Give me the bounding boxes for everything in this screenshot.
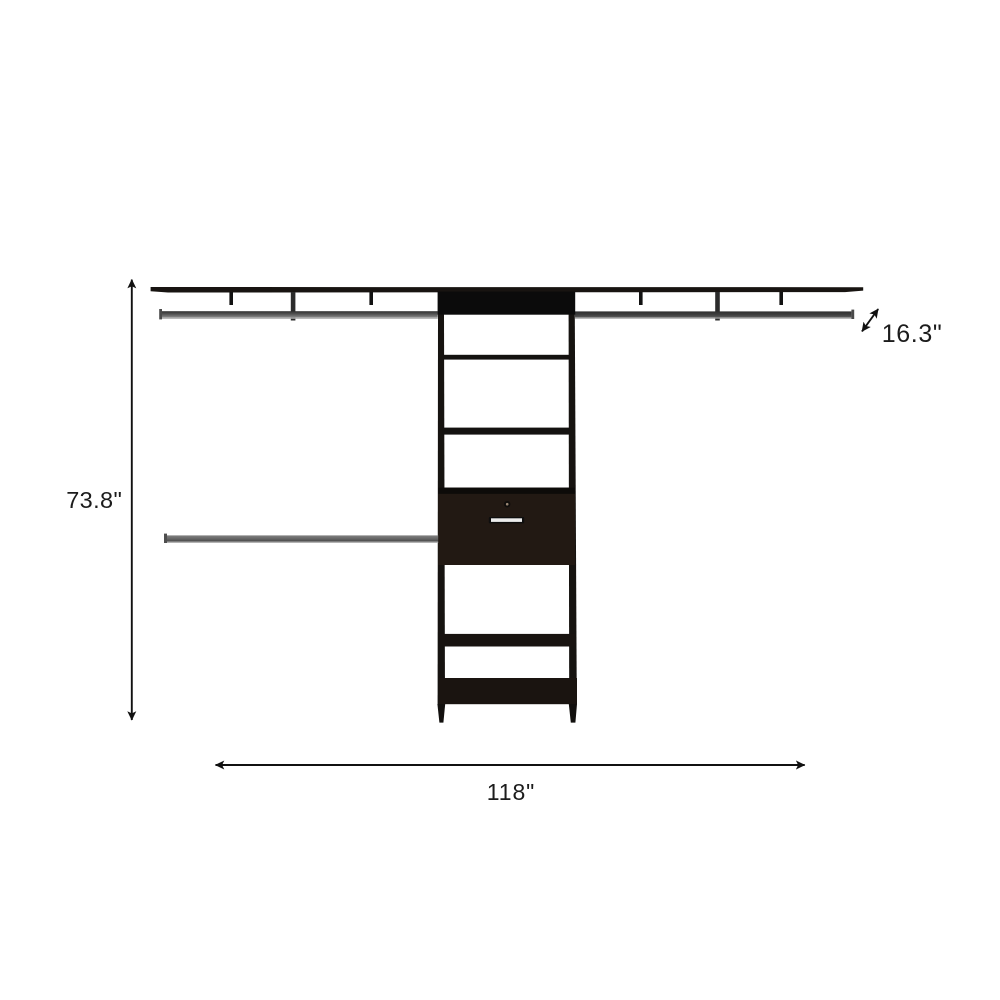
svg-text:118": 118" — [487, 779, 535, 805]
svg-text:16.3": 16.3" — [882, 320, 943, 348]
svg-text:73.8": 73.8" — [66, 487, 122, 513]
